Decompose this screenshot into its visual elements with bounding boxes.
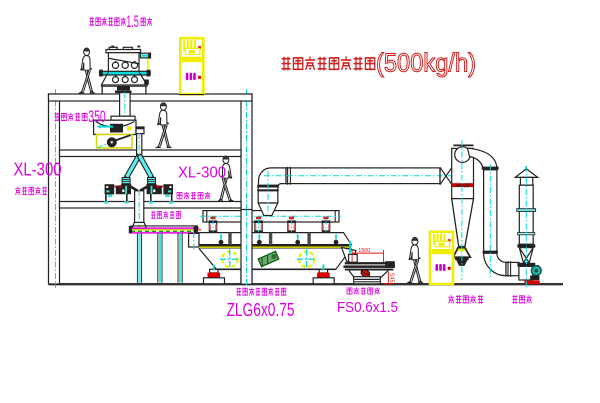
svg-text:(500kg/h): (500kg/h) xyxy=(376,48,476,78)
svg-text:1500: 1500 xyxy=(358,248,370,254)
svg-text:Φ500: Φ500 xyxy=(456,184,470,190)
svg-text:XL-300: XL-300 xyxy=(14,159,62,180)
svg-text:ZLG6x0.75: ZLG6x0.75 xyxy=(227,299,295,320)
svg-text:1.5: 1.5 xyxy=(126,12,139,31)
svg-text:545: 545 xyxy=(389,273,395,283)
svg-text:350: 350 xyxy=(88,108,105,126)
svg-text:XL-300: XL-300 xyxy=(178,165,226,182)
svg-text:FS0.6x1.5: FS0.6x1.5 xyxy=(337,299,398,316)
